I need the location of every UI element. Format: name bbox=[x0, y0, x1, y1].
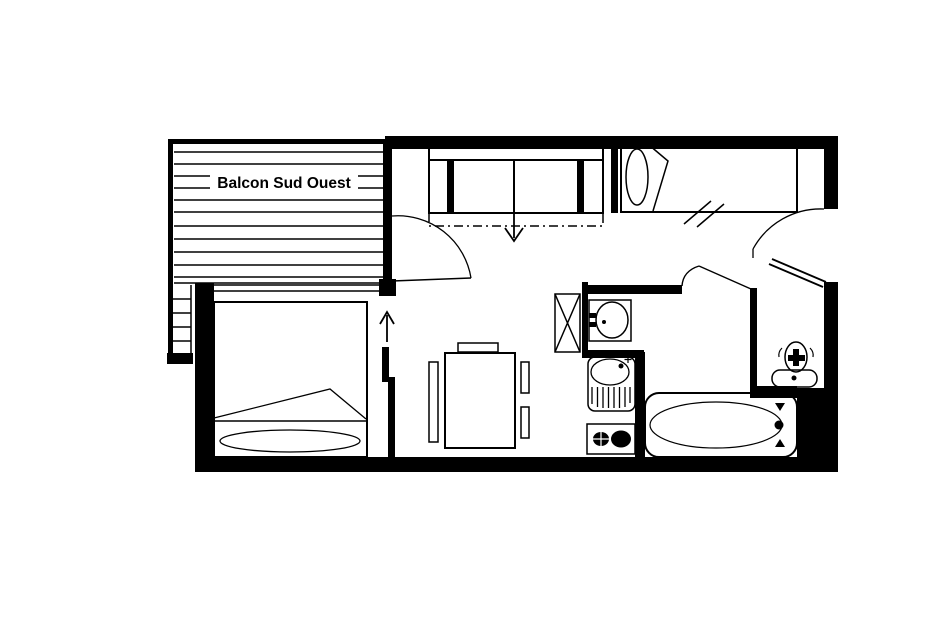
closet bbox=[555, 294, 580, 352]
dining-table bbox=[445, 353, 515, 448]
sofa-unfold-arrow bbox=[505, 213, 523, 241]
floor-plan-drawing: Balcon Sud Ouest bbox=[0, 0, 940, 627]
armrests bbox=[447, 160, 584, 213]
double-bed bbox=[214, 302, 367, 457]
tap bbox=[775, 421, 784, 430]
stairs-strip bbox=[172, 285, 191, 353]
closet-cross bbox=[555, 294, 580, 352]
bathtub bbox=[645, 393, 797, 457]
burner-right bbox=[611, 431, 631, 448]
chair-right-1 bbox=[521, 362, 529, 393]
door-leaf bbox=[392, 278, 471, 281]
blanket-fold bbox=[214, 389, 366, 419]
flush-button bbox=[792, 376, 797, 381]
drain bbox=[602, 320, 606, 324]
chair-top bbox=[458, 343, 498, 352]
bench-left bbox=[429, 362, 438, 442]
bedroom-direction-arrow bbox=[380, 312, 394, 342]
door-leaf bbox=[699, 266, 751, 289]
fold-out-outline bbox=[429, 213, 603, 226]
drainer-ribs bbox=[592, 387, 630, 408]
tap bbox=[589, 313, 596, 327]
chair-right-2 bbox=[521, 407, 529, 438]
pillow bbox=[626, 149, 648, 205]
bathroom-door bbox=[682, 266, 751, 289]
balcony-label-group: Balcon Sud Ouest bbox=[210, 171, 358, 193]
pillow bbox=[220, 430, 360, 452]
sink-bowl bbox=[591, 359, 629, 385]
tub-basin bbox=[650, 402, 782, 448]
sliding-door bbox=[382, 347, 395, 457]
two-burner-cooktop bbox=[587, 424, 635, 454]
kitchen-sink bbox=[588, 356, 635, 411]
washbasin bbox=[589, 300, 631, 341]
blanket-fold bbox=[649, 145, 668, 211]
door-arc bbox=[753, 209, 824, 249]
level-change-marks bbox=[684, 201, 724, 227]
entry-door-swing bbox=[753, 209, 826, 287]
door-arc bbox=[392, 216, 471, 278]
floor-plan-page: Balcon Sud Ouest bbox=[0, 0, 940, 627]
toilet bbox=[772, 342, 817, 387]
balcony-label: Balcon Sud Ouest bbox=[217, 175, 351, 192]
single-bed bbox=[621, 143, 797, 212]
bedroom-wall bbox=[214, 285, 379, 291]
tap bbox=[619, 364, 624, 369]
door-arc bbox=[682, 266, 699, 286]
door-leaf bbox=[769, 259, 826, 287]
sofa-bed bbox=[429, 146, 603, 226]
toilet-seat-mark bbox=[788, 349, 805, 366]
